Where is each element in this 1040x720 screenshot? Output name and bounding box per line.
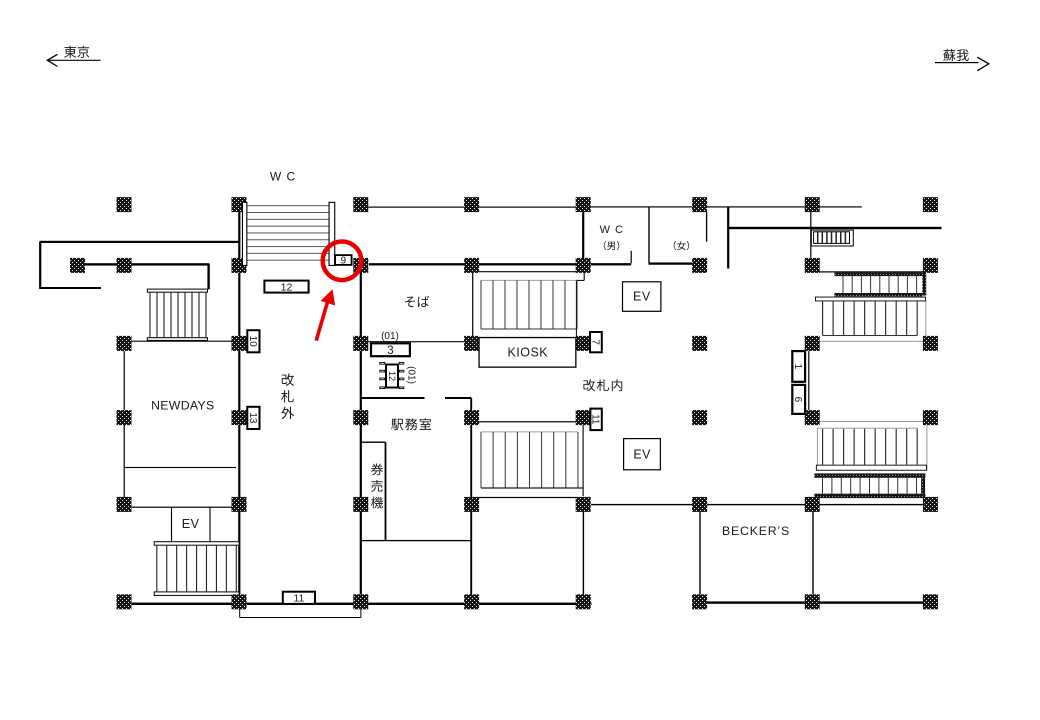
svg-text:W C: W C: [270, 170, 296, 184]
svg-text:13: 13: [247, 412, 258, 424]
svg-text:12: 12: [281, 281, 293, 293]
svg-text:KIOSK: KIOSK: [507, 345, 548, 359]
svg-text:EV: EV: [633, 447, 651, 461]
svg-text:3: 3: [387, 345, 393, 357]
svg-text:1: 1: [792, 364, 803, 370]
svg-text:9: 9: [341, 255, 347, 266]
svg-text:EV: EV: [633, 290, 651, 304]
svg-text:11: 11: [293, 592, 304, 604]
svg-text:W C: W C: [600, 224, 624, 236]
svg-text:(01): (01): [405, 366, 416, 384]
svg-text:12: 12: [387, 371, 397, 381]
svg-text:EV: EV: [182, 517, 200, 531]
svg-text:6: 6: [792, 397, 803, 403]
svg-text:NEWDAYS: NEWDAYS: [151, 399, 214, 413]
svg-text:10: 10: [247, 336, 258, 348]
svg-text:11: 11: [590, 414, 601, 425]
svg-text:(01): (01): [381, 331, 399, 342]
svg-text:7: 7: [589, 339, 600, 345]
svg-text:BECKER’S: BECKER’S: [722, 524, 790, 538]
